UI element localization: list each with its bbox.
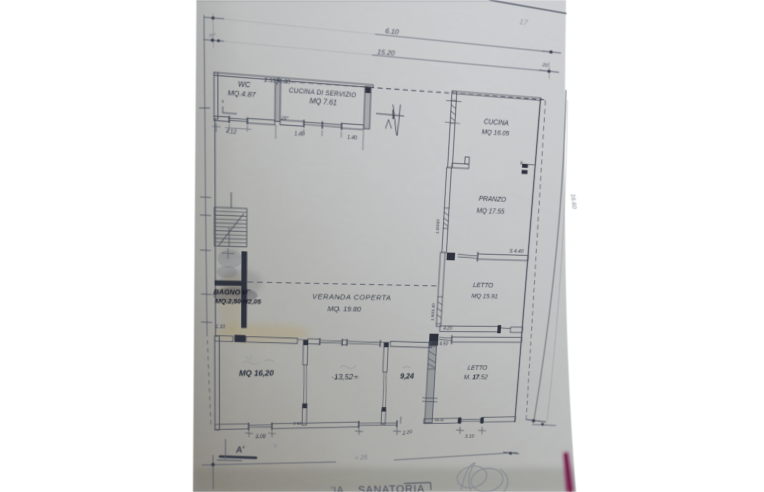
svg-text:1.90/1.40: 1.90/1.40 — [431, 303, 437, 320]
svg-text:20°: 20° — [280, 116, 289, 122]
svg-text:PRANZO: PRANZO — [479, 195, 507, 204]
svg-text:MQ 16,20: MQ 16,20 — [239, 369, 274, 377]
svg-text:16.60: 16.60 — [569, 194, 577, 210]
svg-text:SANATORIA: SANATORIA — [358, 483, 425, 492]
svg-text:4.50: 4.50 — [439, 342, 449, 347]
svg-text:≈ 26: ≈ 26 — [355, 454, 368, 462]
svg-text:·13,52 ≈: ·13,52 ≈ — [331, 372, 358, 381]
svg-text:ˎ'IA: ˎ'IA — [327, 485, 344, 492]
svg-text:BAGNO Mˉ: BAGNO Mˉ — [214, 288, 252, 296]
svg-text:3.08: 3.08 — [255, 434, 266, 440]
svg-text:1.10: 1.10 — [215, 325, 226, 330]
svg-text:M. 17.52: M. 17.52 — [464, 374, 489, 381]
svg-text:4.12: 4.12 — [226, 129, 237, 135]
svg-text:MQ. 19.80: MQ. 19.80 — [327, 304, 361, 313]
svg-text:2.20: 2.20 — [402, 429, 413, 436]
svg-text:MQ 17.55: MQ 17.55 — [476, 207, 505, 216]
svg-text:MQ 15.91: MQ 15.91 — [471, 292, 498, 300]
svg-text:MQ 16.05: MQ 16.05 — [482, 128, 511, 138]
svg-text:LETTO: LETTO — [467, 364, 488, 371]
svg-text:LETTO: LETTO — [473, 281, 494, 289]
svg-text:6.10: 6.10 — [385, 28, 399, 36]
svg-text:MQ 7.61: MQ 7.61 — [309, 97, 337, 107]
svg-text:4.20: 4.20 — [443, 326, 453, 331]
svg-text:3.10: 3.10 — [465, 434, 475, 439]
svg-text:CUCINA: CUCINA — [484, 118, 509, 128]
svg-text:3.52: 3.52 — [293, 422, 302, 427]
svg-text:VERANDA COPERTA: VERANDA COPERTA — [312, 292, 391, 302]
svg-text:16.11: 16.11 — [434, 418, 444, 423]
svg-text:1.40: 1.40 — [294, 132, 305, 138]
svg-text:MQ.4.87: MQ.4.87 — [228, 88, 257, 99]
svg-text:MQ.2,50·H2,05: MQ.2,50·H2,05 — [215, 297, 262, 305]
svg-text:9,24: 9,24 — [400, 372, 414, 380]
svg-text:S 4.40: S 4.40 — [509, 248, 524, 254]
svg-text:2.55┣1.30: 2.55┣1.30 — [263, 76, 291, 86]
svg-text:1.00/40: 1.00/40 — [436, 219, 442, 234]
svg-text:1.40: 1.40 — [347, 135, 358, 141]
svg-text:WC: WC — [238, 80, 251, 90]
